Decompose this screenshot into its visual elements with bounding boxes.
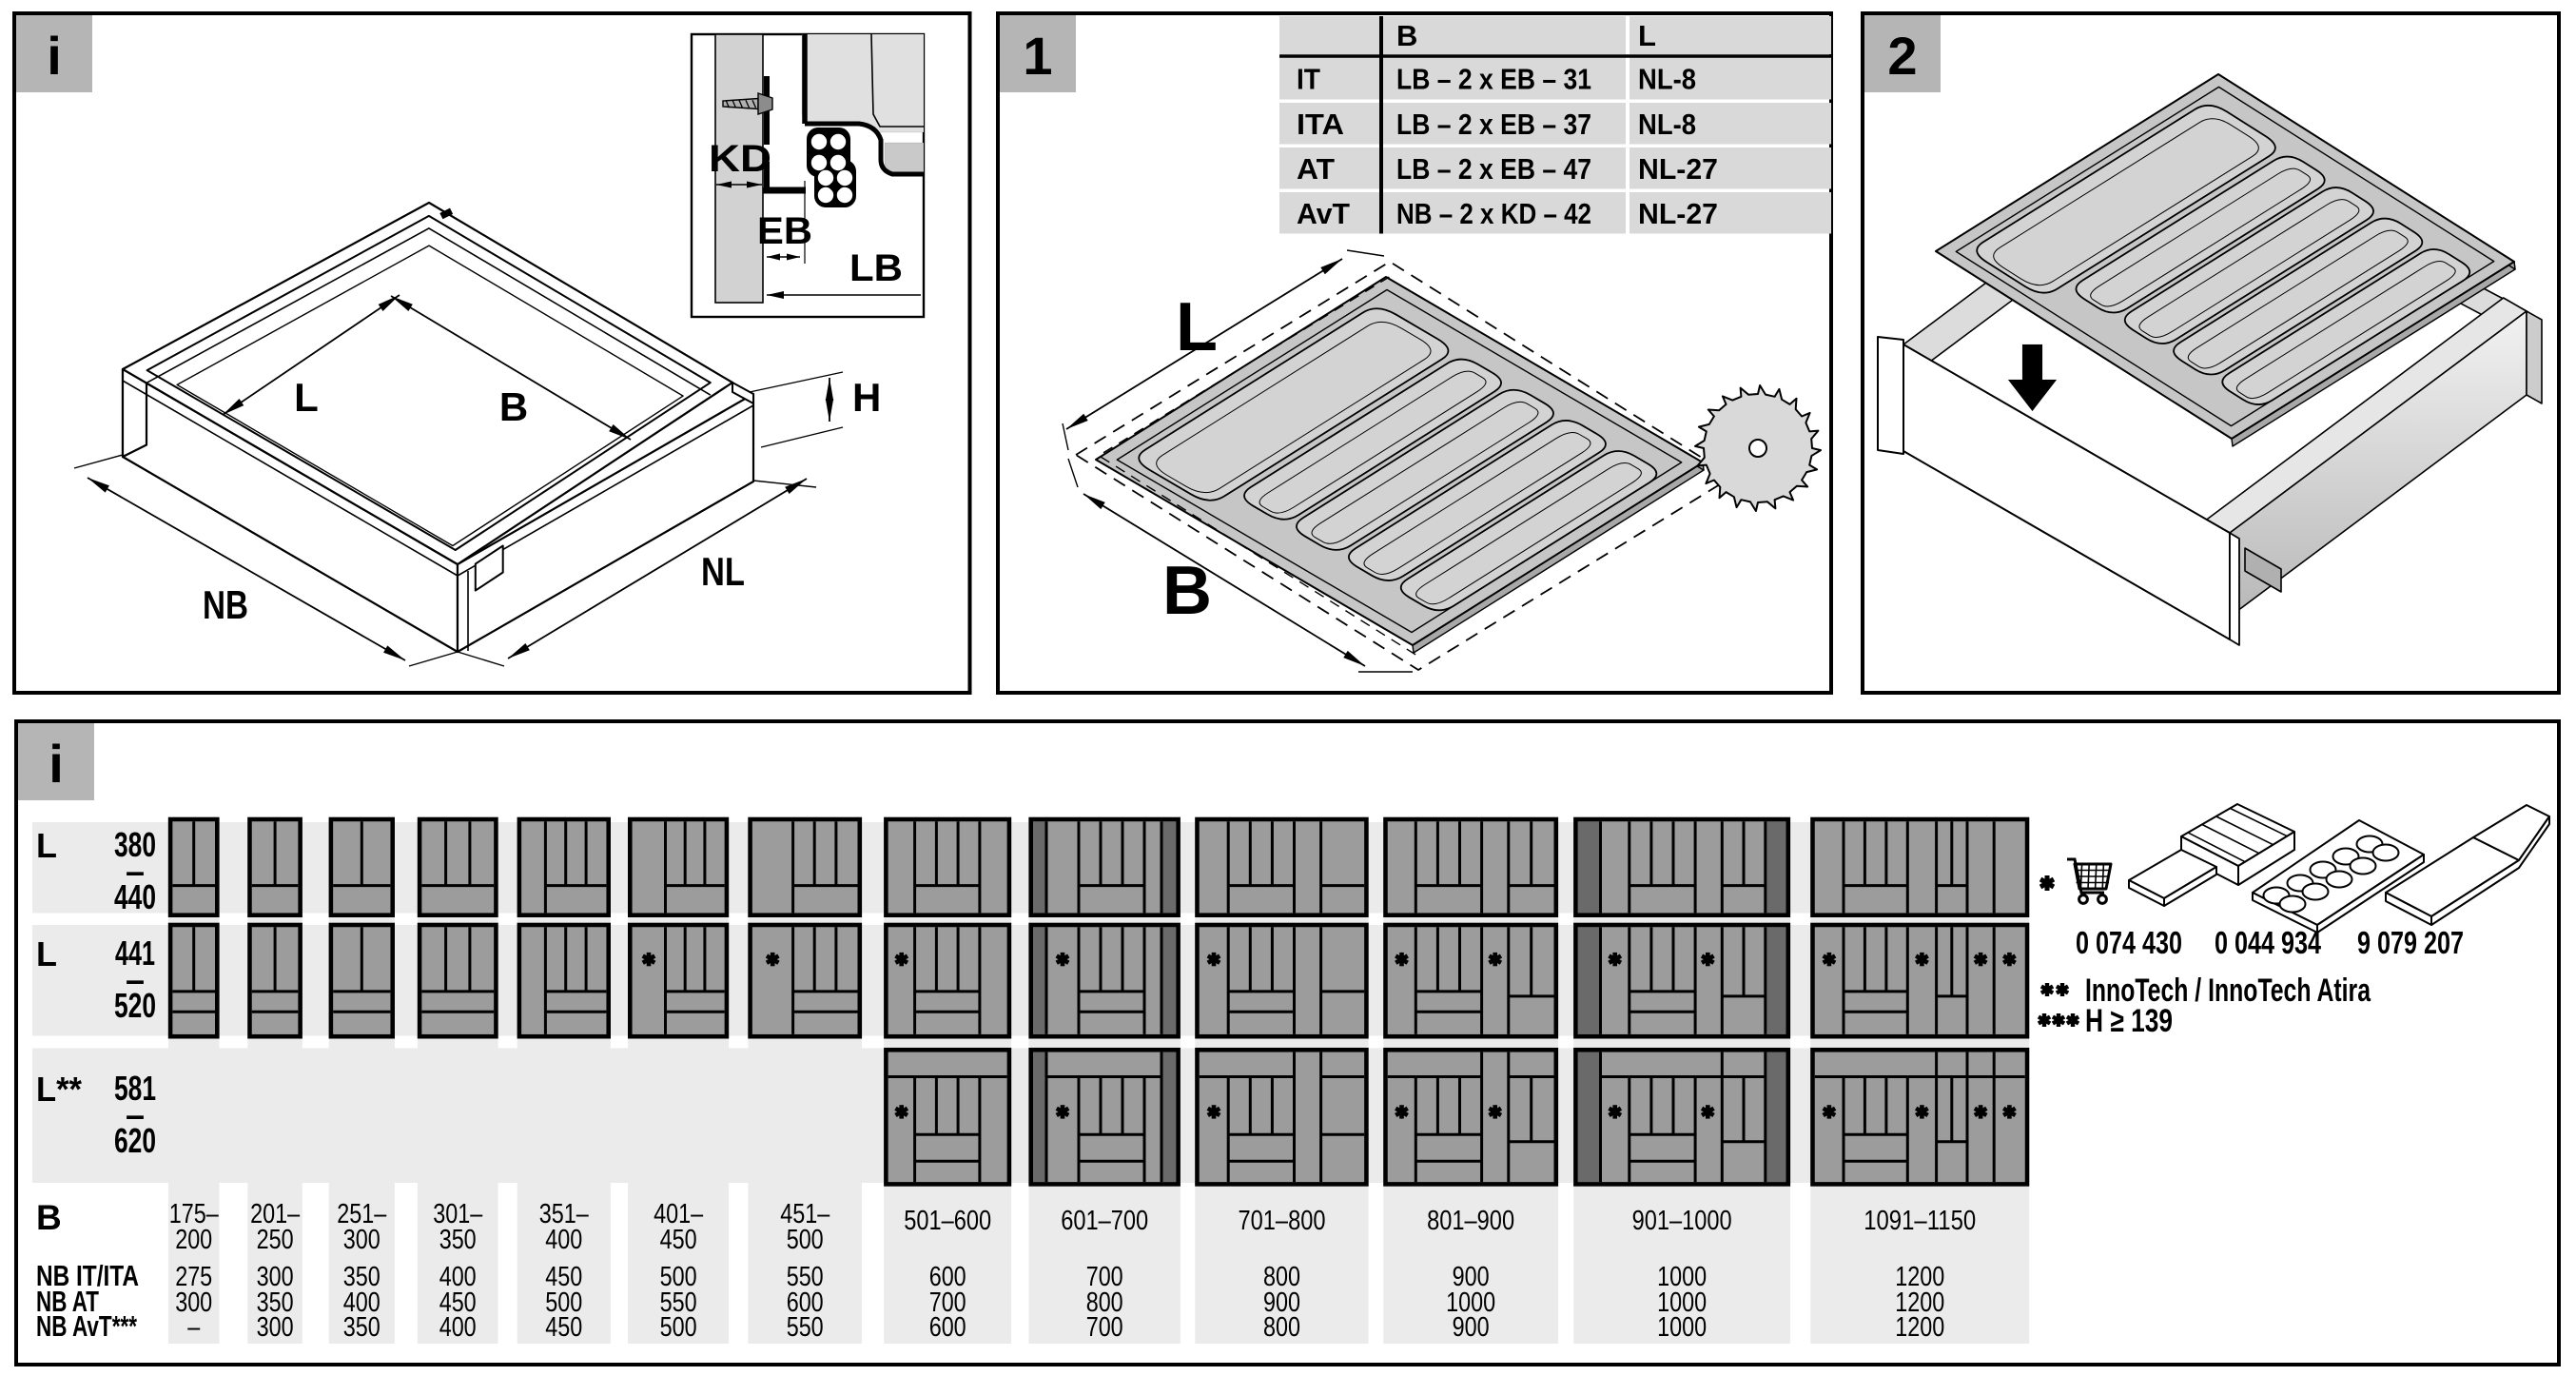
svg-text:500: 500 [787, 1225, 824, 1255]
svg-text:350: 350 [439, 1225, 477, 1255]
svg-text:NL-27: NL-27 [1638, 152, 1718, 186]
svg-text:i: i [49, 734, 64, 794]
svg-text:450: 450 [545, 1312, 582, 1343]
svg-text:NB – 2 x KD – 42: NB – 2 x KD – 42 [1396, 197, 1591, 230]
svg-text:600: 600 [929, 1312, 966, 1343]
svg-text:ITA: ITA [1297, 108, 1344, 141]
svg-text:L: L [36, 934, 57, 973]
svg-text:NB: NB [203, 582, 248, 627]
svg-text:AT: AT [1297, 152, 1335, 186]
svg-text:IT: IT [1297, 63, 1320, 96]
svg-text:NL: NL [701, 549, 745, 594]
svg-text:350: 350 [343, 1312, 381, 1343]
svg-text:LB – 2 x EB – 31: LB – 2 x EB – 31 [1396, 63, 1591, 96]
svg-text:L: L [36, 826, 57, 865]
svg-text:250: 250 [257, 1225, 294, 1255]
svg-text:AvT: AvT [1297, 197, 1350, 230]
svg-text:200: 200 [175, 1225, 212, 1255]
svg-text:L: L [1638, 19, 1656, 52]
svg-text:1200: 1200 [1895, 1312, 1944, 1343]
svg-text:300: 300 [343, 1225, 381, 1255]
svg-text:700: 700 [1086, 1312, 1123, 1343]
svg-text:LB – 2 x EB – 47: LB – 2 x EB – 47 [1396, 152, 1591, 186]
svg-text:550: 550 [787, 1312, 824, 1343]
svg-text:LB – 2 x EB – 37: LB – 2 x EB – 37 [1396, 108, 1591, 141]
svg-text:B: B [1162, 553, 1212, 629]
svg-text:NB AvT***: NB AvT*** [36, 1309, 138, 1343]
svg-text:800: 800 [1263, 1312, 1300, 1343]
svg-text:EB: EB [757, 210, 812, 252]
svg-text:0 044 934: 0 044 934 [2215, 925, 2321, 960]
svg-text:601–700: 601–700 [1061, 1206, 1148, 1236]
svg-text:440: 440 [114, 877, 156, 916]
svg-text:520: 520 [114, 986, 156, 1025]
svg-text:9 079 207: 9 079 207 [2357, 925, 2464, 960]
svg-text:400: 400 [545, 1225, 582, 1255]
svg-text:L: L [294, 375, 319, 420]
svg-text:501–600: 501–600 [904, 1206, 991, 1236]
svg-text:801–900: 801–900 [1427, 1206, 1514, 1236]
svg-text:B: B [499, 384, 528, 429]
svg-text:701–800: 701–800 [1239, 1206, 1326, 1236]
svg-text:H: H [852, 375, 881, 420]
svg-text:400: 400 [439, 1312, 477, 1343]
svg-text:2: 2 [1887, 26, 1917, 86]
svg-text:L**: L** [36, 1070, 82, 1109]
svg-text:300: 300 [257, 1312, 294, 1343]
svg-text:620: 620 [114, 1121, 156, 1160]
svg-text:1091–1150: 1091–1150 [1864, 1206, 1976, 1236]
svg-text:1: 1 [1023, 26, 1052, 86]
svg-text:901–1000: 901–1000 [1632, 1206, 1732, 1236]
svg-text:B: B [36, 1198, 62, 1237]
svg-text:H ≥ 139: H ≥ 139 [2085, 1003, 2173, 1039]
svg-text:L: L [1176, 289, 1218, 365]
svg-text:500: 500 [660, 1312, 697, 1343]
svg-text:B: B [1396, 19, 1417, 52]
svg-text:NL-8: NL-8 [1638, 108, 1696, 141]
svg-text:i: i [47, 26, 62, 86]
svg-text:KD: KD [709, 138, 771, 180]
svg-text:900: 900 [1453, 1312, 1490, 1343]
svg-text:1000: 1000 [1657, 1312, 1707, 1343]
svg-text:NL-8: NL-8 [1638, 63, 1696, 96]
svg-text:450: 450 [660, 1225, 697, 1255]
svg-text:–: – [187, 1312, 201, 1343]
svg-text:0 074 430: 0 074 430 [2076, 925, 2182, 960]
svg-text:NL-27: NL-27 [1638, 197, 1718, 230]
svg-text:LB: LB [849, 247, 903, 289]
